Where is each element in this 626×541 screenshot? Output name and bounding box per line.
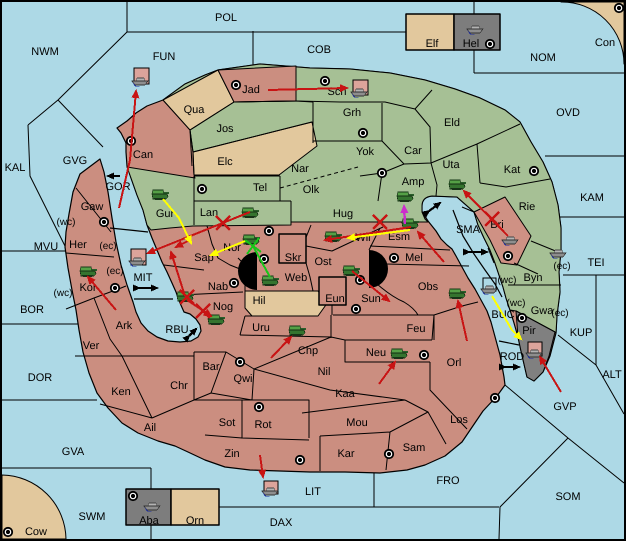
svg-text:KAM: KAM <box>580 192 604 204</box>
svg-text:Bar: Bar <box>202 361 219 373</box>
svg-text:Yok: Yok <box>356 146 374 158</box>
svg-text:Orl: Orl <box>447 357 462 369</box>
svg-text:Web: Web <box>285 272 307 284</box>
svg-text:Grh: Grh <box>343 107 361 119</box>
svg-text:(wc): (wc) <box>54 288 73 299</box>
svg-text:(ec): (ec) <box>106 266 123 277</box>
svg-text:Los: Los <box>450 414 468 426</box>
svg-text:Uta: Uta <box>442 159 460 171</box>
svg-text:Zin: Zin <box>224 448 239 460</box>
svg-text:ROD: ROD <box>500 351 525 363</box>
svg-text:GVG: GVG <box>63 155 87 167</box>
svg-text:Jad: Jad <box>242 84 260 96</box>
svg-text:OVD: OVD <box>556 107 580 119</box>
svg-text:Sap: Sap <box>194 252 214 264</box>
svg-text:Ken: Ken <box>111 386 131 398</box>
svg-text:Rie: Rie <box>519 201 536 213</box>
svg-text:FRO: FRO <box>436 475 460 487</box>
svg-text:ALT: ALT <box>602 369 622 381</box>
svg-text:Hil: Hil <box>253 295 266 307</box>
svg-text:Can: Can <box>133 149 153 161</box>
svg-text:Elf: Elf <box>426 38 440 50</box>
svg-text:FUN: FUN <box>153 51 176 63</box>
svg-text:(ec): (ec) <box>99 241 116 252</box>
svg-text:Qwi: Qwi <box>234 373 253 385</box>
svg-text:Ark: Ark <box>116 320 133 332</box>
svg-text:Chp: Chp <box>298 345 318 357</box>
svg-text:BOR: BOR <box>20 304 44 316</box>
svg-text:Kar: Kar <box>337 448 354 460</box>
svg-text:(ec): (ec) <box>551 308 568 319</box>
svg-text:NOM: NOM <box>530 52 556 64</box>
svg-text:Skr: Skr <box>285 252 302 264</box>
svg-text:Hug: Hug <box>333 208 353 220</box>
svg-text:Feu: Feu <box>407 323 426 335</box>
svg-text:Obs: Obs <box>418 281 439 293</box>
svg-text:Ost: Ost <box>314 256 331 268</box>
svg-text:SMA: SMA <box>456 224 481 236</box>
svg-text:Kaa: Kaa <box>335 388 355 400</box>
svg-text:Tel: Tel <box>253 182 267 194</box>
svg-text:DAX: DAX <box>270 517 293 529</box>
svg-text:Gaw: Gaw <box>81 201 104 213</box>
svg-text:COB: COB <box>307 44 331 56</box>
svg-text:DOR: DOR <box>28 372 53 384</box>
svg-text:Ail: Ail <box>144 422 156 434</box>
svg-text:Hel: Hel <box>463 38 480 50</box>
svg-text:Mou: Mou <box>346 417 367 429</box>
svg-text:Aba: Aba <box>139 515 159 527</box>
svg-text:Amp: Amp <box>402 176 425 188</box>
svg-text:Neu: Neu <box>366 347 386 359</box>
svg-text:GVA: GVA <box>62 446 85 458</box>
svg-text:Con: Con <box>595 37 615 49</box>
svg-text:(ec): (ec) <box>553 261 570 272</box>
svg-text:Her: Her <box>69 239 87 251</box>
svg-text:SOM: SOM <box>555 491 580 503</box>
svg-text:Qua: Qua <box>184 104 206 116</box>
svg-text:(wc): (wc) <box>507 298 526 309</box>
svg-text:Mel: Mel <box>405 252 423 264</box>
svg-text:SWM: SWM <box>79 511 106 523</box>
svg-text:GVP: GVP <box>553 401 576 413</box>
svg-text:Nab: Nab <box>208 281 228 293</box>
svg-text:Orn: Orn <box>186 515 204 527</box>
svg-text:Jos: Jos <box>216 123 234 135</box>
svg-text:KUP: KUP <box>570 327 593 339</box>
svg-text:Sot: Sot <box>219 417 236 429</box>
svg-text:Eun: Eun <box>325 293 345 305</box>
svg-text:Sun: Sun <box>361 293 381 305</box>
svg-text:Uru: Uru <box>252 322 270 334</box>
svg-text:(wc): (wc) <box>57 217 76 228</box>
svg-text:Olk: Olk <box>303 184 320 196</box>
svg-text:Cow: Cow <box>25 526 47 538</box>
svg-text:NWM: NWM <box>31 46 59 58</box>
svg-text:KAL: KAL <box>5 162 26 174</box>
svg-text:Lan: Lan <box>200 207 218 219</box>
svg-text:Eld: Eld <box>444 117 460 129</box>
svg-text:LIT: LIT <box>305 486 321 498</box>
svg-text:Nil: Nil <box>318 366 331 378</box>
svg-text:MVU: MVU <box>34 241 59 253</box>
svg-text:GOR: GOR <box>105 181 130 193</box>
svg-text:Ver: Ver <box>83 340 100 352</box>
svg-text:(wc): (wc) <box>498 275 517 286</box>
svg-text:Sam: Sam <box>403 442 426 454</box>
svg-text:Pir: Pir <box>522 325 536 337</box>
svg-text:Car: Car <box>404 145 422 157</box>
svg-text:Nog: Nog <box>213 301 233 313</box>
svg-text:RBU: RBU <box>165 324 188 336</box>
svg-text:MIT: MIT <box>134 272 153 284</box>
svg-text:Byn: Byn <box>524 272 543 284</box>
svg-text:Nar: Nar <box>291 163 309 175</box>
svg-text:Elc: Elc <box>217 156 233 168</box>
svg-text:Chr: Chr <box>170 380 188 392</box>
svg-text:Kat: Kat <box>504 164 521 176</box>
svg-text:TEI: TEI <box>587 257 604 269</box>
svg-text:Rot: Rot <box>254 419 271 431</box>
svg-text:POL: POL <box>215 12 237 24</box>
